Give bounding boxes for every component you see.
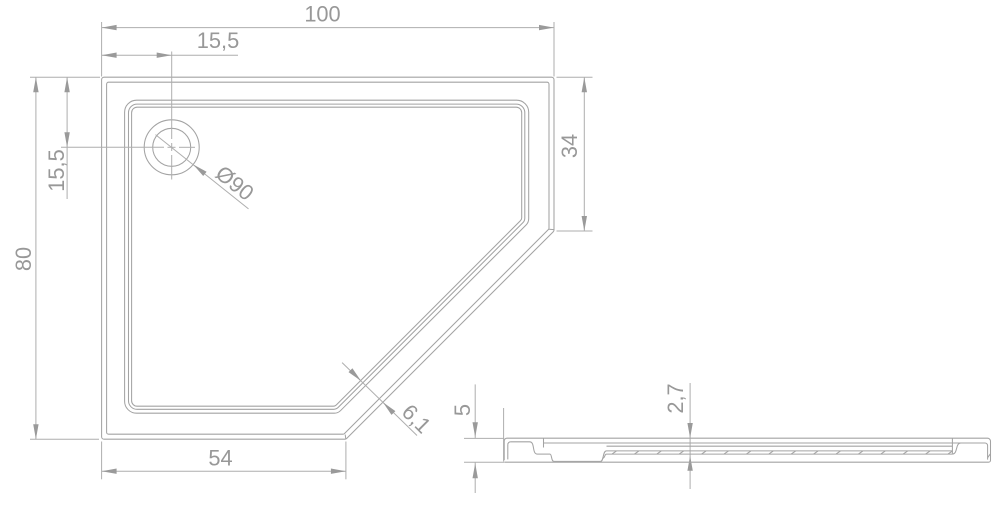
- svg-text:34: 34: [557, 134, 582, 158]
- svg-text:15,5: 15,5: [197, 28, 239, 53]
- svg-text:100: 100: [304, 2, 340, 27]
- svg-text:15,5: 15,5: [44, 149, 69, 191]
- svg-text:5: 5: [450, 404, 475, 416]
- svg-text:2,7: 2,7: [663, 383, 688, 413]
- svg-text:80: 80: [11, 247, 36, 271]
- svg-text:54: 54: [208, 446, 232, 471]
